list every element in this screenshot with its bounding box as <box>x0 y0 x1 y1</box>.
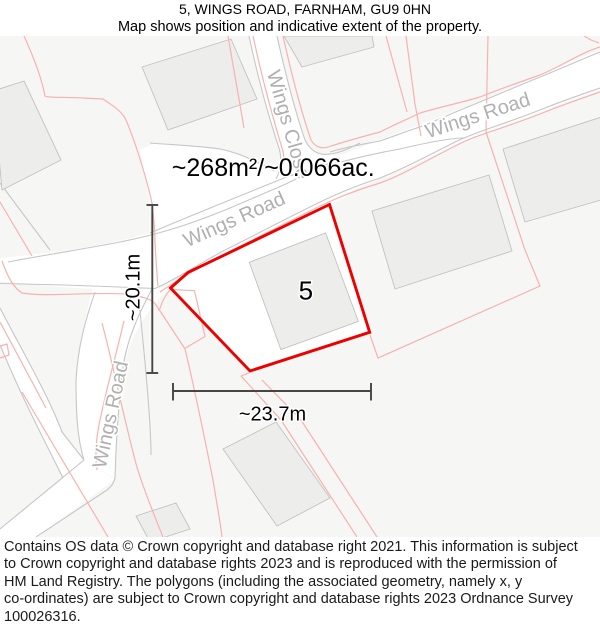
svg-text:~268m²/~0.066ac.: ~268m²/~0.066ac. <box>172 154 375 182</box>
svg-text:~23.7m: ~23.7m <box>239 404 306 426</box>
svg-text:5: 5 <box>299 276 313 306</box>
svg-text:~20.1m: ~20.1m <box>123 254 145 321</box>
